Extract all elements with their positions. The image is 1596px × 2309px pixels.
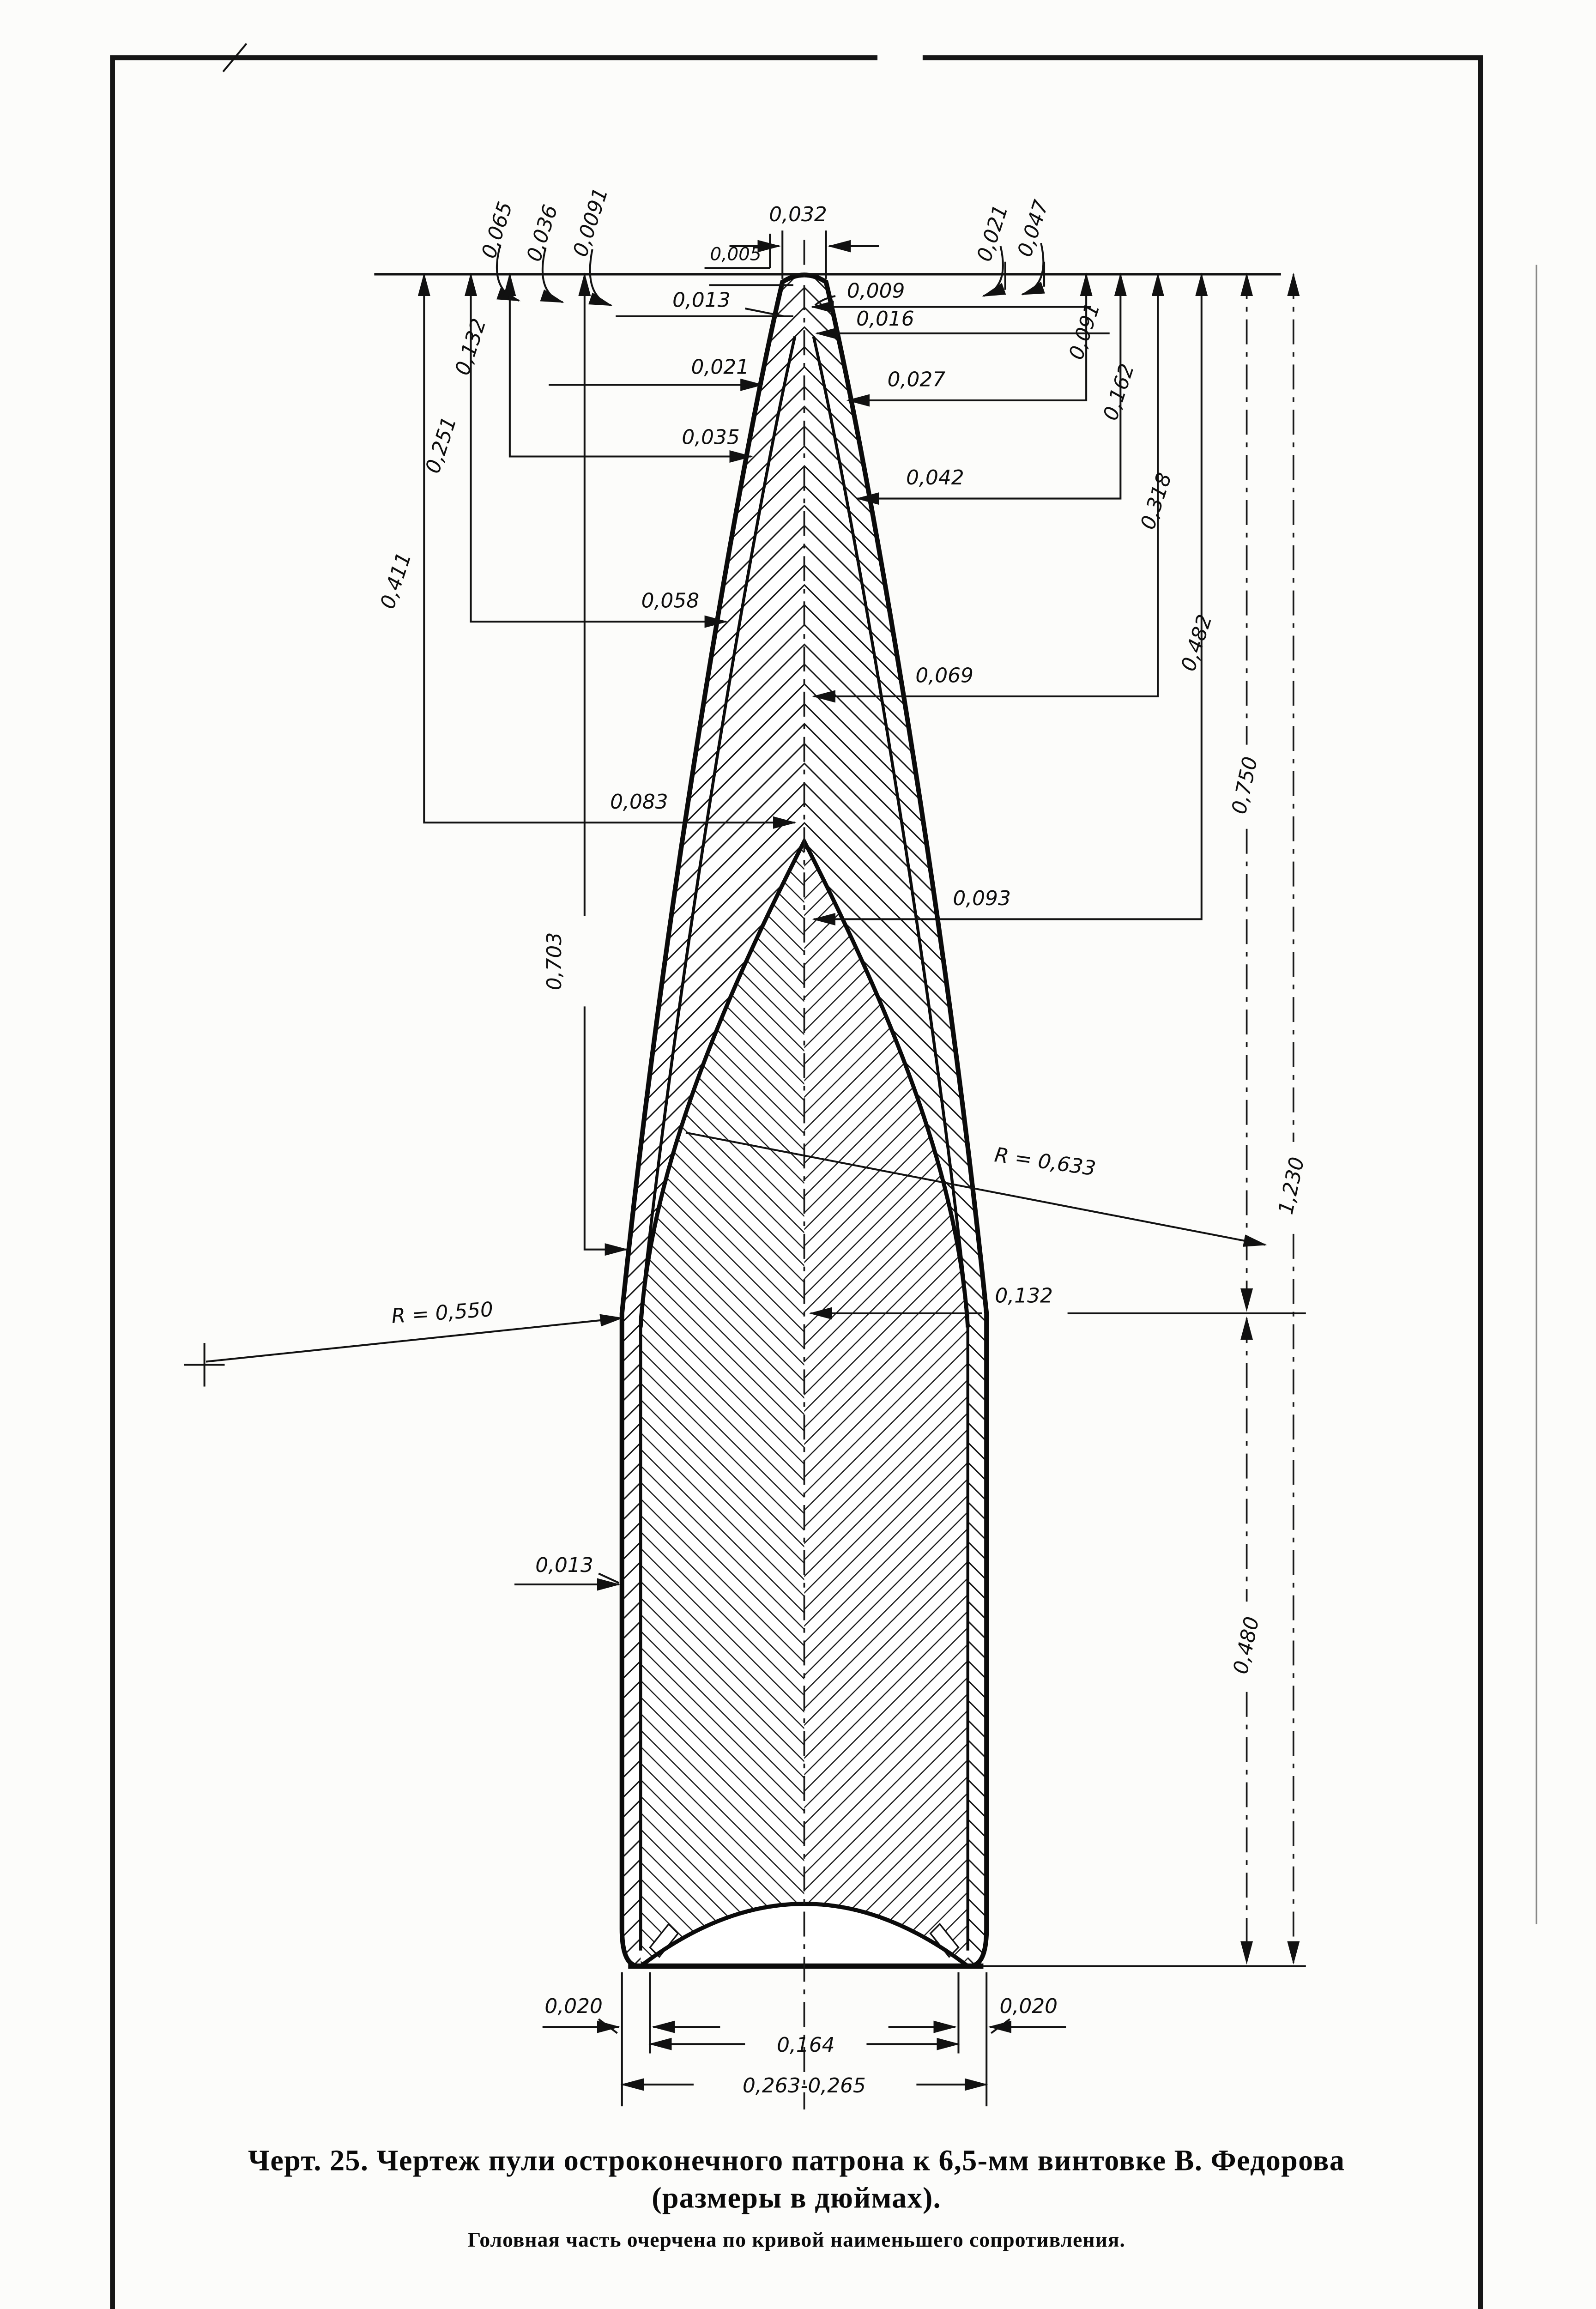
dim-label-left-0251: 0,251	[421, 414, 461, 476]
dim-label-base-0020-right: 0,020	[1000, 1995, 1058, 2018]
dim-label-tip-width: 0,032	[769, 203, 827, 226]
dim-label-right-0480: 0,480	[1229, 1614, 1264, 1676]
dim-label-left-0703: 0,703	[543, 932, 566, 991]
dim-label-right-0162: 0,162	[1099, 361, 1139, 423]
dim-label-chord-0083: 0,083	[610, 790, 668, 814]
dim-label-chord-0016: 0,016	[856, 307, 914, 331]
dim-label-chord-0013-upper: 0,013	[672, 289, 731, 312]
dim-label-jacket-thickness: 0,013	[535, 1553, 593, 1577]
dim-label-right-0482: 0,482	[1177, 612, 1217, 674]
dim-label-chord-0058: 0,058	[641, 589, 700, 613]
dim-label-chord-0132: 0,132	[995, 1284, 1053, 1307]
dim-label-chord-0021: 0,021	[691, 356, 750, 379]
scanned-book-page: 0,065 0,036 0,0091 0,032 0,005 0,021 0,0…	[0, 0, 1596, 2309]
dim-label-chord-0069: 0,069	[915, 664, 973, 688]
dim-label-top-00091: 0,0091	[568, 185, 613, 260]
dim-label-chord-0009: 0,009	[847, 279, 905, 302]
dim-label-top-0065: 0,065	[477, 199, 517, 261]
dim-line-0703	[585, 1006, 627, 1249]
dim-label-right-1230: 1,230	[1274, 1155, 1309, 1216]
dim-label-chord-0027: 0,027	[888, 368, 946, 392]
dim-label-base-0263: 0,263-0,265	[743, 2074, 866, 2097]
caption-line-1: Черт. 25. Чертеж пули остроконечного пат…	[248, 2144, 1345, 2176]
dim-label-base-0020-left: 0,020	[544, 1995, 603, 2018]
dim-label-0005: 0,005	[710, 244, 762, 265]
dim-label-left-0132: 0,132	[451, 316, 491, 378]
dim-label-base-0164: 0,164	[777, 2033, 835, 2057]
dim-label-radius-inner: R = 0,633	[993, 1143, 1097, 1180]
dim-label-chord-0093: 0,093	[953, 887, 1011, 910]
dim-label-top-0021: 0,021	[973, 202, 1013, 264]
dim-label-radius-outer: R = 0,550	[391, 1298, 494, 1328]
dim-label-chord-0035: 0,035	[682, 425, 740, 449]
dim-label-left-0411: 0,411	[376, 550, 416, 612]
dim-label-top-0047: 0,047	[1013, 197, 1053, 260]
caption-line-3: Головная часть очерчена по кривой наимен…	[467, 2228, 1125, 2251]
dim-label-right-0750: 0,750	[1227, 755, 1263, 816]
dim-label-top-0036: 0,036	[522, 202, 562, 264]
bullet-technical-drawing: 0,065 0,036 0,0091 0,032 0,005 0,021 0,0…	[0, 0, 1596, 2309]
dim-label-right-0091: 0,091	[1064, 300, 1105, 363]
dim-label-chord-0042: 0,042	[906, 466, 964, 490]
figure-caption: Черт. 25. Чертеж пули остроконечного пат…	[248, 2144, 1345, 2251]
dim-label-right-0318: 0,318	[1136, 470, 1176, 532]
caption-line-2: (размеры в дюймах).	[652, 2181, 941, 2214]
